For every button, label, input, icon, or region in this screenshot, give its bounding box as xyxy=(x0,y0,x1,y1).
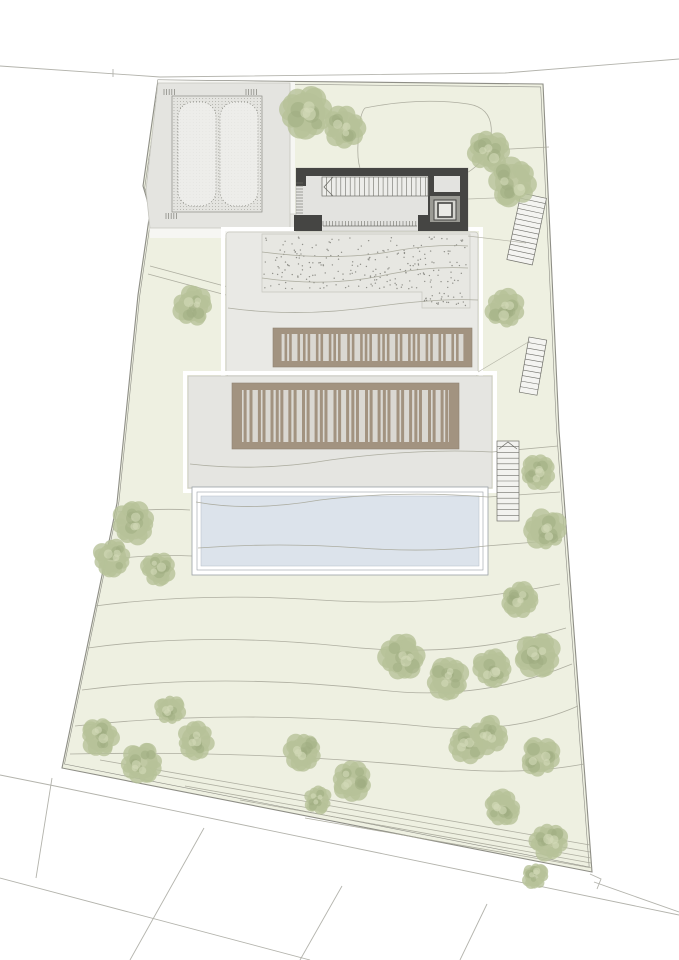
deck-slat xyxy=(370,390,373,442)
deck-slat xyxy=(352,334,355,361)
deck-slat xyxy=(271,390,274,442)
deck-slat xyxy=(439,334,442,361)
main-building xyxy=(294,168,468,231)
deck-slat xyxy=(443,334,446,361)
deck-slat xyxy=(329,334,332,361)
deck-slat xyxy=(279,334,282,361)
deck-slat xyxy=(383,390,386,442)
deck-slat xyxy=(387,390,390,442)
deck-slat xyxy=(244,390,247,442)
deck-slat xyxy=(320,390,323,442)
deck-slat xyxy=(294,390,297,442)
deck-slat xyxy=(387,334,390,361)
deck-slat xyxy=(360,334,363,361)
deck-slat xyxy=(433,390,436,442)
deck-slat xyxy=(395,334,398,361)
deck-slat xyxy=(338,334,341,361)
deck-slat xyxy=(302,390,305,442)
tree xyxy=(333,760,371,802)
building-stair xyxy=(322,177,428,196)
deck-slat xyxy=(289,334,292,361)
deck-slat xyxy=(258,390,261,442)
deck-slat xyxy=(378,334,381,361)
deck-slat xyxy=(239,390,242,442)
deck-slat xyxy=(409,390,412,442)
deck-slat xyxy=(419,390,422,442)
site-plan-drawing xyxy=(0,0,679,960)
deck-slat xyxy=(280,390,283,442)
deck-slat xyxy=(320,334,323,361)
lift-cab xyxy=(438,203,452,217)
deck-slat xyxy=(285,334,288,361)
site-plan xyxy=(0,0,679,960)
deck-slat xyxy=(449,390,452,442)
planting-bed xyxy=(178,102,216,206)
building-wall xyxy=(296,168,468,176)
deck-slat xyxy=(417,334,420,361)
deck-slat xyxy=(347,334,350,361)
deck-slat xyxy=(316,334,319,361)
deck-slat xyxy=(250,390,253,442)
deck-slat xyxy=(263,390,266,442)
deck-slat xyxy=(414,390,417,442)
deck-slat xyxy=(346,390,349,442)
deck-slat xyxy=(463,334,466,361)
planting-bed xyxy=(220,102,258,206)
deck-slat xyxy=(369,334,372,361)
deck-slat xyxy=(382,334,385,361)
deck-slat xyxy=(324,390,327,442)
deck-slat xyxy=(456,334,459,361)
deck-slat xyxy=(451,334,454,361)
deck-slat xyxy=(430,334,433,361)
pool-stair xyxy=(497,441,519,521)
deck-slat xyxy=(401,390,404,442)
deck-slat xyxy=(351,390,354,442)
deck-slat xyxy=(365,334,368,361)
deck-slat xyxy=(297,334,300,361)
deck-slat xyxy=(378,390,381,442)
deck-slat xyxy=(315,390,318,442)
pergola-deck-2 xyxy=(232,383,459,449)
swimming-pool xyxy=(192,487,488,575)
deck-slat xyxy=(333,334,336,361)
deck-slat xyxy=(441,390,444,442)
deck-slat xyxy=(428,390,431,442)
building-wall xyxy=(294,215,322,231)
deck-slat xyxy=(397,390,400,442)
pergola-deck-1 xyxy=(273,328,472,367)
deck-slat xyxy=(426,334,429,361)
tree xyxy=(121,743,162,784)
deck-slat xyxy=(365,390,368,442)
deck-slat xyxy=(334,390,337,442)
deck-slat xyxy=(303,334,306,361)
deck-slat xyxy=(356,390,359,442)
deck-slat xyxy=(308,334,311,361)
parking-platform xyxy=(146,83,290,228)
deck-slat xyxy=(288,390,291,442)
deck-slat xyxy=(400,334,403,361)
deck-slat xyxy=(445,390,448,442)
deck-slat xyxy=(307,390,310,442)
deck-slat xyxy=(338,390,341,442)
deck-slat xyxy=(413,334,416,361)
deck-slat xyxy=(408,334,411,361)
deck-slat xyxy=(276,390,279,442)
